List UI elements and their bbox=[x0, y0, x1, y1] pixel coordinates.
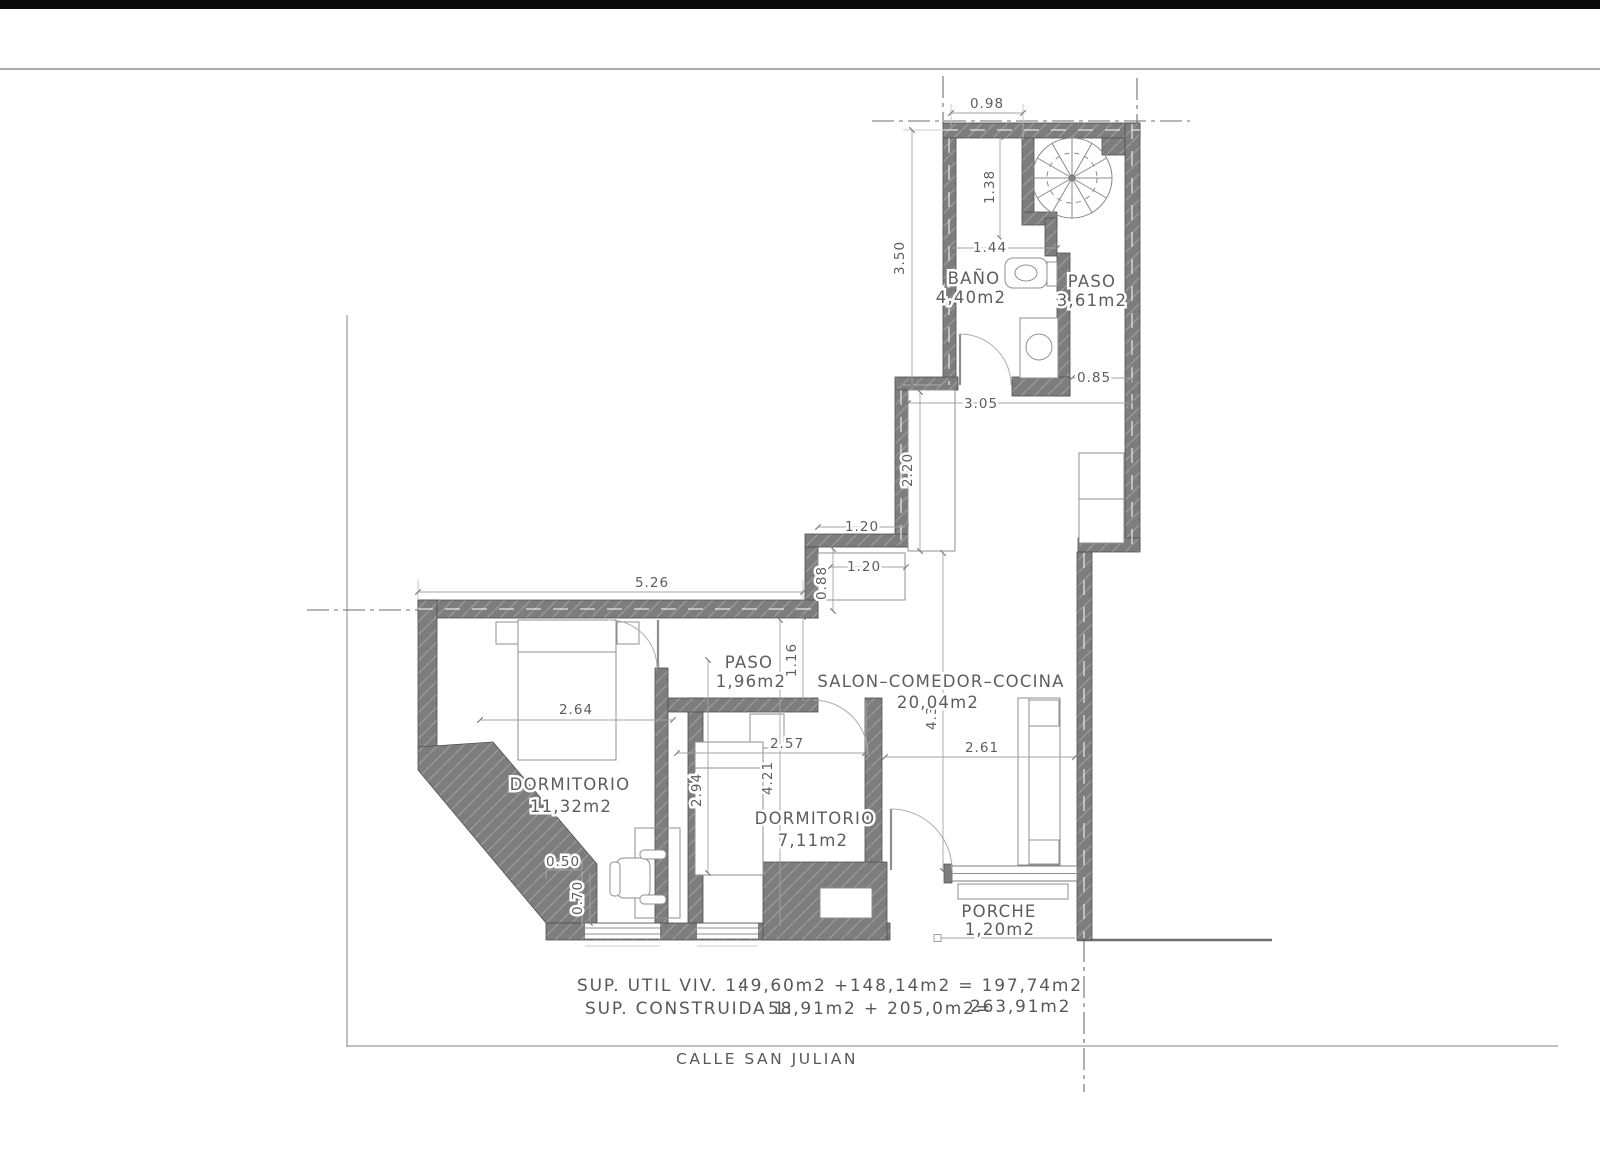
dim-counter-len: 2.20 bbox=[900, 453, 916, 487]
door-dorm2 bbox=[813, 700, 868, 755]
chair-armrest-top bbox=[640, 850, 666, 859]
wall-stair-stub bbox=[1045, 218, 1057, 256]
porch-dim-marker bbox=[934, 935, 941, 942]
window-cap-left bbox=[944, 864, 952, 883]
room-dorm2-area: 7,11m2 bbox=[778, 831, 849, 850]
summary-line2-label: SUP. CONSTRUIDA 1: bbox=[585, 999, 794, 1019]
room-paso-lower-name: PASO bbox=[725, 653, 773, 672]
dim-bano-height: 3.50 bbox=[892, 241, 908, 275]
dim-dorm2-width: 2.57 bbox=[770, 736, 804, 752]
dim-paso-pass: 0.85 bbox=[1077, 370, 1111, 386]
wall-bano-bottom-right bbox=[1012, 377, 1070, 396]
bed-dorm1-outline bbox=[518, 620, 616, 760]
door-bano bbox=[960, 334, 1011, 385]
wall-kitchen-jog-h bbox=[805, 534, 908, 547]
room-porche-name: PORCHE bbox=[961, 902, 1036, 921]
annotations: SUP. UTIL VIV. 1: 49,60m2 +148,14m2 = 19… bbox=[577, 976, 1083, 1068]
door-dorm2-swing bbox=[813, 700, 868, 755]
chair-armrest-bottom bbox=[640, 895, 666, 904]
room-paso-upper-name: PASO bbox=[1068, 272, 1116, 291]
top-black-bar bbox=[0, 0, 1600, 9]
nightstand-left bbox=[496, 622, 518, 644]
toilet-cistern bbox=[1047, 262, 1057, 286]
dim-top-width: 0.98 bbox=[970, 96, 1004, 112]
cabinet bbox=[1079, 453, 1124, 543]
room-dorm1-area: 11,32m2 bbox=[530, 797, 612, 816]
chair-back bbox=[610, 862, 620, 896]
porch-sill bbox=[958, 884, 1068, 899]
window-salon bbox=[944, 864, 1077, 899]
dim-salon-width: 2.61 bbox=[965, 740, 999, 756]
room-porche-area: 1,20m2 bbox=[965, 920, 1036, 939]
nightstand-right bbox=[617, 622, 639, 644]
bed-dorm1 bbox=[496, 620, 639, 760]
summary-line2-values: 58,91m2 + 205,0m2= bbox=[768, 999, 992, 1019]
room-paso-lower-area: 1,96m2 bbox=[716, 672, 787, 691]
dim-wall-thick: 0.50 bbox=[546, 854, 580, 870]
chair-seat bbox=[616, 858, 650, 898]
room-dorm2-name: DORMITORIO bbox=[755, 809, 876, 828]
room-bano-area: 4,40m2 bbox=[936, 288, 1007, 307]
toilet-bowl bbox=[1015, 265, 1037, 281]
spiral-stair bbox=[1032, 138, 1112, 218]
dim-jog-h: 0.88 bbox=[814, 566, 830, 600]
room-salon-area: 20,04m2 bbox=[897, 693, 979, 712]
window-dorm1 bbox=[585, 924, 660, 947]
dim-jog-w2: 1.20 bbox=[847, 559, 881, 575]
dim-win-offset: 0.70 bbox=[570, 881, 586, 915]
window-dorm2 bbox=[697, 924, 758, 947]
dim-stair-depth: 1.38 bbox=[982, 170, 998, 204]
floor-plan-page: 0.98 1.38 3.50 1.44 0.85 3.05 2.20 1.20 … bbox=[0, 0, 1600, 1155]
room-dorm1-name: DORMITORIO bbox=[510, 775, 631, 794]
wall-dorm2-top bbox=[668, 698, 818, 712]
dim-salon-top: 3.05 bbox=[964, 396, 998, 412]
room-salon-name: SALON–COMEDOR–COCINA bbox=[817, 672, 1064, 691]
wall-dorm1-dorm2-divider bbox=[655, 668, 668, 923]
sofa bbox=[1018, 698, 1060, 865]
dim-dorm2-height: 2.94 bbox=[689, 773, 705, 807]
dim-dorm1-top: 5.26 bbox=[635, 575, 669, 591]
summary-line2-total: 263,91m2 bbox=[970, 997, 1071, 1017]
bed-dorm2-outline bbox=[695, 742, 763, 875]
wall-dorm2-right bbox=[865, 698, 882, 877]
dim-bed-width: 2.64 bbox=[559, 702, 593, 718]
street-label: CALLE SAN JULIAN bbox=[676, 1050, 858, 1068]
room-paso-upper-area: 3,61m2 bbox=[1057, 291, 1128, 310]
room-bano-name: BAÑO bbox=[948, 269, 1001, 288]
washbasin bbox=[1026, 334, 1052, 360]
dim-dorm1-height: 4.21 bbox=[760, 761, 776, 795]
dim-bano-width: 1.44 bbox=[973, 240, 1007, 256]
window-dorm1-gap bbox=[585, 924, 660, 939]
desk-and-chair bbox=[610, 828, 680, 918]
dim-paso-open: 1.16 bbox=[784, 643, 800, 677]
summary-line1-values: 49,60m2 +148,14m2 = 197,74m2 bbox=[738, 976, 1083, 996]
wall-stair-notch bbox=[1102, 138, 1125, 155]
floor-plan-drawing: 0.98 1.38 3.50 1.44 0.85 3.05 2.20 1.20 … bbox=[0, 0, 1600, 1155]
dorm2-recess bbox=[820, 888, 872, 918]
door-bano-swing bbox=[960, 334, 1011, 385]
window-dorm2-gap bbox=[697, 924, 758, 939]
wall-dorm1-left bbox=[418, 600, 437, 747]
summary-line1-label: SUP. UTIL VIV. 1: bbox=[577, 976, 745, 996]
dim-jog-w1: 1.20 bbox=[845, 519, 879, 535]
